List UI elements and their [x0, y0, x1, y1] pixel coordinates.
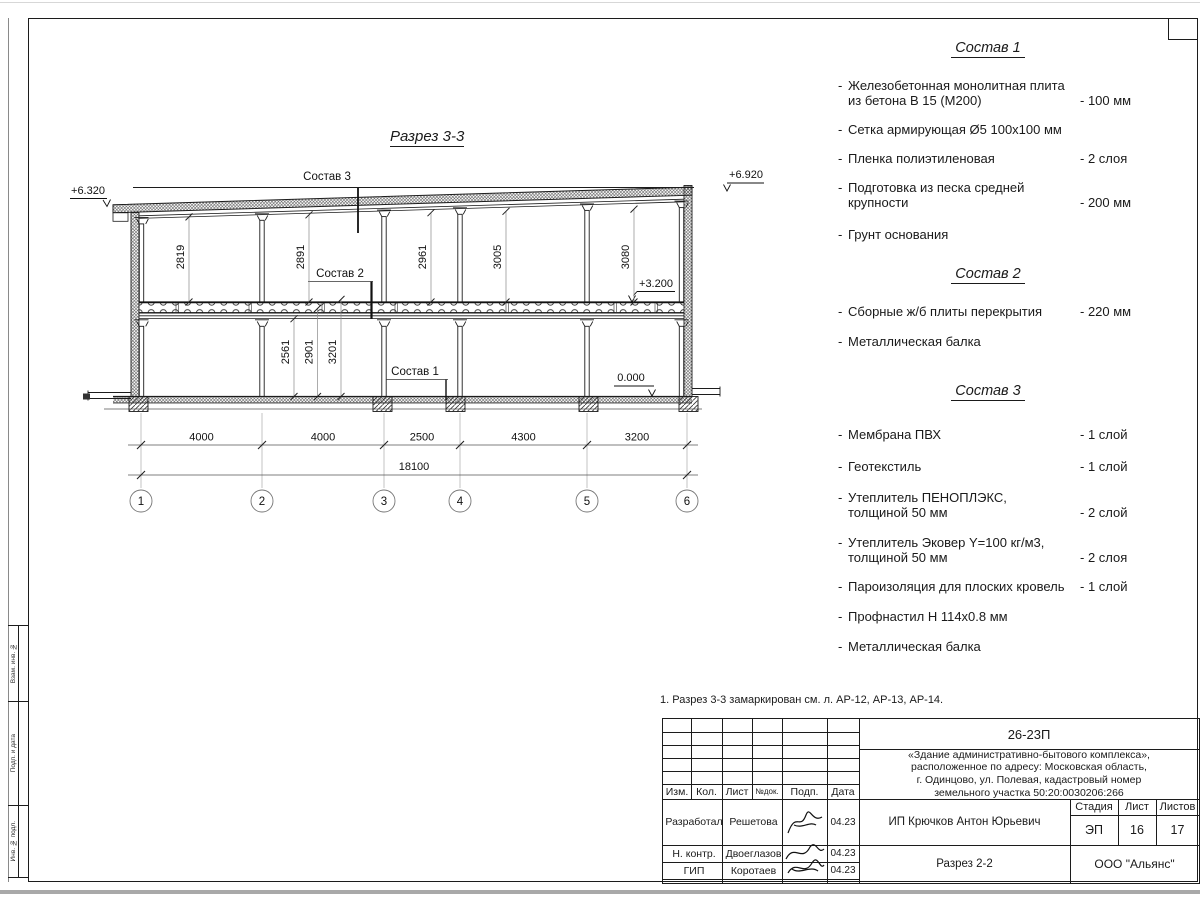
elevation-floor: +3.200: [639, 278, 673, 290]
tb-header-kol: Кол.: [691, 784, 722, 799]
spec-title-1: Состав 1: [838, 40, 1138, 56]
spec-item: - Утеплитель ПЕНОПЛЭКС, толщиной 50 мм -…: [838, 490, 1138, 520]
spec-item: - Профнастил Н 114х0.8 мм: [838, 609, 1138, 624]
axis-5: 5: [584, 496, 590, 508]
spec-item: - Пароизоляция для плоских кровель - 1 с…: [838, 579, 1138, 594]
spec-item: - Пленка полиэтиленовая - 2 слоя: [838, 151, 1138, 166]
tb-header-sheets: Листов: [1156, 799, 1199, 815]
tb-date-gip: 04.23: [827, 862, 859, 879]
strip-cell-inv: Инв. № подл.: [8, 805, 18, 877]
dim-upper-2: 2891: [295, 245, 307, 269]
tb-date-ncontrol: 04.23: [827, 845, 859, 862]
tb-header-izm: Изм.: [663, 784, 691, 799]
dim-lower-1: 2561: [280, 340, 292, 364]
tb-header-data: Дата: [827, 784, 859, 799]
tb-sheet-value: 16: [1118, 815, 1156, 845]
dim-bay-5: 3200: [625, 432, 649, 444]
strip-cell-podp: Подп. и дата: [8, 701, 18, 805]
tb-sheets-value: 17: [1156, 815, 1199, 845]
tb-name-developer: Решетова: [722, 799, 782, 845]
spec-item: - Мембрана ПВХ - 1 слой: [838, 427, 1138, 442]
axis-2: 2: [259, 496, 265, 508]
columns-lower: [135, 320, 689, 397]
tb-header-podp: Подп.: [782, 784, 827, 799]
dims-upper: 2819 2891 2961 3005 3080: [175, 206, 638, 306]
tb-header-doc: №док.: [752, 784, 782, 799]
dim-bay-1: 4000: [189, 432, 213, 444]
axis-4: 4: [457, 496, 464, 508]
tb-name-gip: Коротаев: [722, 862, 782, 879]
spec-item: - Металлическая балка: [838, 639, 1138, 654]
dash: -: [838, 78, 842, 93]
dim-total: 18100: [399, 461, 430, 473]
ground-slab: [83, 387, 720, 412]
section-drawing: Состав 3 Состав 2 Состав 1 +6.320 +6.920…: [40, 110, 800, 530]
dim-bay-3: 2500: [410, 432, 434, 444]
tb-doc-name: Разрез 2-2: [859, 845, 1070, 883]
axis-3: 3: [381, 496, 387, 508]
tb-header-list: Лист: [722, 784, 752, 799]
signature-gip: [782, 841, 827, 881]
sheet-note: 1. Разрез 3-3 замаркирован см. л. АР-12,…: [660, 694, 943, 706]
tb-header-stage: Стадия: [1070, 799, 1118, 815]
dim-upper-1: 2819: [175, 245, 187, 269]
axis-bubbles: 1 2 3 4 5 6: [130, 490, 698, 512]
tb-stage-value: ЭП: [1070, 815, 1118, 845]
elevation-right: +6.920: [729, 169, 763, 181]
axis-1: 1: [138, 496, 144, 508]
tb-role-developer: Разработал: [663, 799, 722, 845]
signature-developer: [782, 803, 827, 843]
callout-sostav3: Состав 3: [303, 171, 351, 183]
elevation-ground: 0.000: [617, 372, 645, 384]
page-edge-top: [0, 2, 1200, 3]
spec-title-3: Состав 3: [838, 383, 1138, 399]
tb-date-developer: 04.23: [827, 799, 859, 845]
tb-header-sheet: Лист: [1118, 799, 1156, 815]
ledge-end-block: [83, 394, 90, 400]
elevation-left: +6.320: [71, 185, 105, 197]
floor-slab: [139, 302, 684, 318]
tb-role-gip: ГИП: [663, 862, 722, 879]
spec-item: - Сетка армирующая Ø5 100х100 мм: [838, 122, 1138, 137]
dim-lower-2: 2901: [304, 340, 316, 364]
callout-sostav1: Состав 1: [391, 366, 439, 378]
spec-item: - Грунт основания: [838, 227, 1138, 242]
tb-name-ncontrol: Двоеглазов: [722, 845, 782, 862]
tb-company: ООО "Альянс": [1070, 845, 1199, 883]
tb-project-name: «Здание административно-бытового комплек…: [859, 749, 1199, 799]
dim-upper-4: 3005: [492, 245, 504, 269]
frame-corner-box: [1168, 18, 1198, 40]
drawing-sheet: { "drawing": { "title": "Разрез 3-3", "e…: [0, 0, 1200, 900]
strip-cell-vzam: Взам. инв. №: [8, 626, 18, 701]
page-edge-bottom: [0, 890, 1200, 894]
dim-bay-2: 4000: [311, 432, 335, 444]
spec-item: - Геотекстиль - 1 слой: [838, 459, 1138, 474]
dim-upper-3: 2961: [417, 245, 429, 269]
spec-item: - Сборные ж/б плиты перекрытия - 220 мм: [838, 304, 1138, 319]
dim-upper-5: 3080: [620, 245, 632, 269]
spec-item: - Металлическая балка: [838, 334, 1138, 349]
tb-doc-code: 26-23П: [859, 719, 1199, 749]
dim-lower-3: 3201: [327, 340, 339, 364]
axis-6: 6: [684, 496, 690, 508]
dim-bay-4: 4300: [511, 432, 535, 444]
side-strip: Взам. инв. № Подп. и дата Инв. № подл.: [8, 625, 28, 877]
tb-client: ИП Крючков Антон Юрьевич: [859, 799, 1070, 845]
title-block: Изм. Кол. Лист №док. Подп. Дата Разработ…: [662, 718, 1200, 884]
dims-bottom: 4000 4000 2500 4300 3200 18100: [128, 413, 698, 488]
spec-title-2: Состав 2: [838, 266, 1138, 282]
spec-item: - Утеплитель Эковер Y=100 кг/м3, толщино…: [838, 535, 1138, 565]
tb-role-ncontrol: Н. контр.: [663, 845, 722, 862]
callout-sostav2: Состав 2: [316, 268, 364, 280]
spec-item: - Железобетонная монолитная плита из бет…: [838, 78, 1138, 108]
walls: [131, 186, 692, 397]
spec-item: - Подготовка из песка средней крупности …: [838, 180, 1138, 210]
roof-slab: [113, 187, 694, 221]
